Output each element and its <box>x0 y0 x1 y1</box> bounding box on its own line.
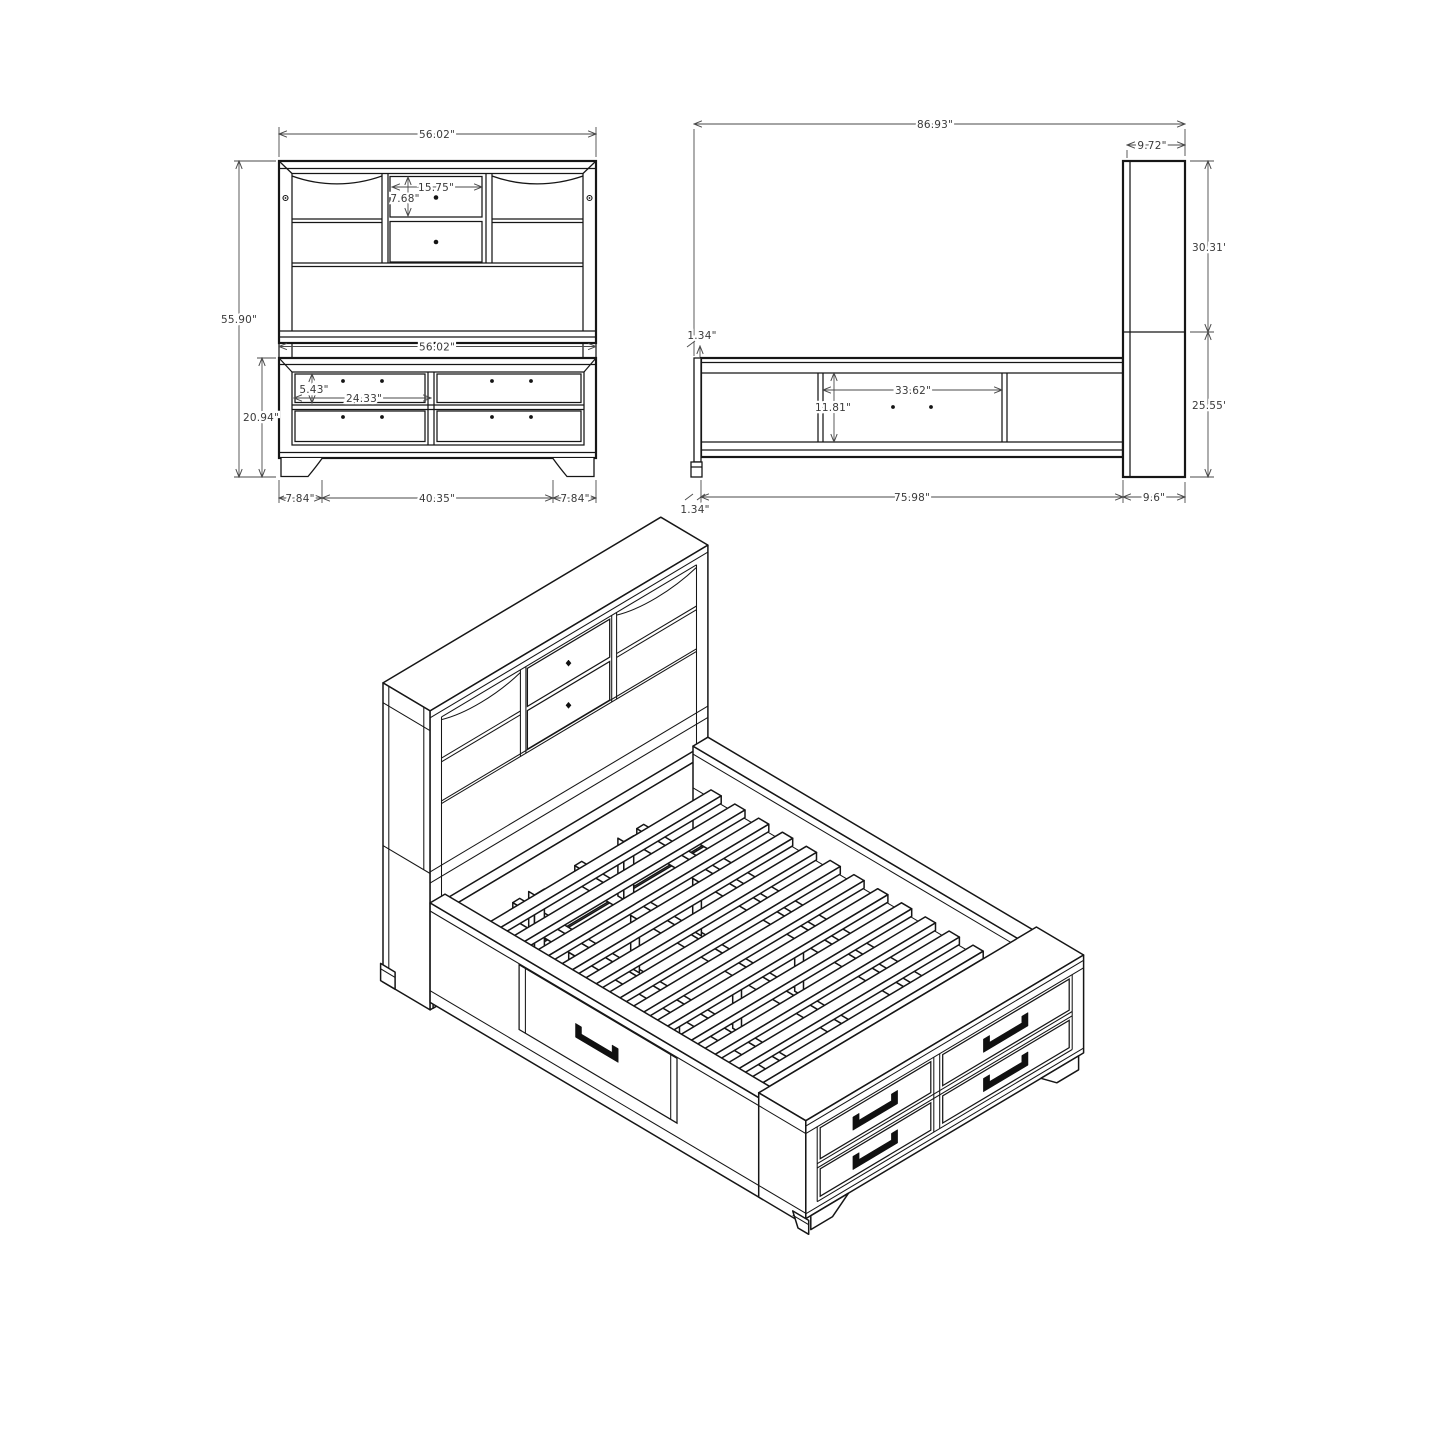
bracket-foot <box>281 458 322 477</box>
dim-base-width: 56.02" <box>419 342 455 354</box>
dim-headboard-base-depth: 9.6" <box>1143 492 1165 504</box>
dim-headboard-lower-height: 25.55" <box>1192 400 1225 412</box>
dim-headboard-depth: 9.72" <box>1137 140 1166 152</box>
side-headboard-drawing <box>1123 161 1185 477</box>
dim-frame-lip-top: 1.34" <box>687 330 716 342</box>
side-rail-drawing <box>691 358 1123 477</box>
bracket-foot <box>553 458 594 477</box>
dim-overall-width: 56.02" <box>419 129 455 141</box>
side-elevation-view: 86.93" 9.72" 30.31" 25.55" 33.62" 11.81"… <box>665 95 1225 520</box>
isometric-bed-drawing <box>381 517 1084 1234</box>
dim-side-drawer-height: 11.81" <box>815 402 851 414</box>
dim-foot-offset-left: 7.84" <box>285 493 314 505</box>
knob-dot <box>434 240 439 245</box>
dim-shelf-width: 15.75" <box>418 182 454 194</box>
isometric-view <box>365 492 1105 1252</box>
technical-drawing-page: { "page": { "background": "#ffffff", "li… <box>0 0 1445 1445</box>
dim-side-drawer-width: 33.62" <box>895 385 931 397</box>
dim-drawer-width: 24.33" <box>346 393 382 405</box>
dim-overall-length: 86.93" <box>917 119 953 131</box>
dim-shelf-height: 7.68" <box>390 193 419 205</box>
front-footboard-drawing <box>279 358 596 477</box>
front-elevation-view: 56.02" 15.75" 7.68" 55.90" 56.02" 20.94"… <box>215 90 615 520</box>
dim-footboard-height: 20.94" <box>243 412 279 424</box>
knob-dot <box>434 195 439 200</box>
dim-overall-height: 55.90" <box>221 314 257 326</box>
dim-headboard-upper-height: 30.31" <box>1192 242 1225 254</box>
dim-drawer-height: 5.43" <box>299 384 328 396</box>
